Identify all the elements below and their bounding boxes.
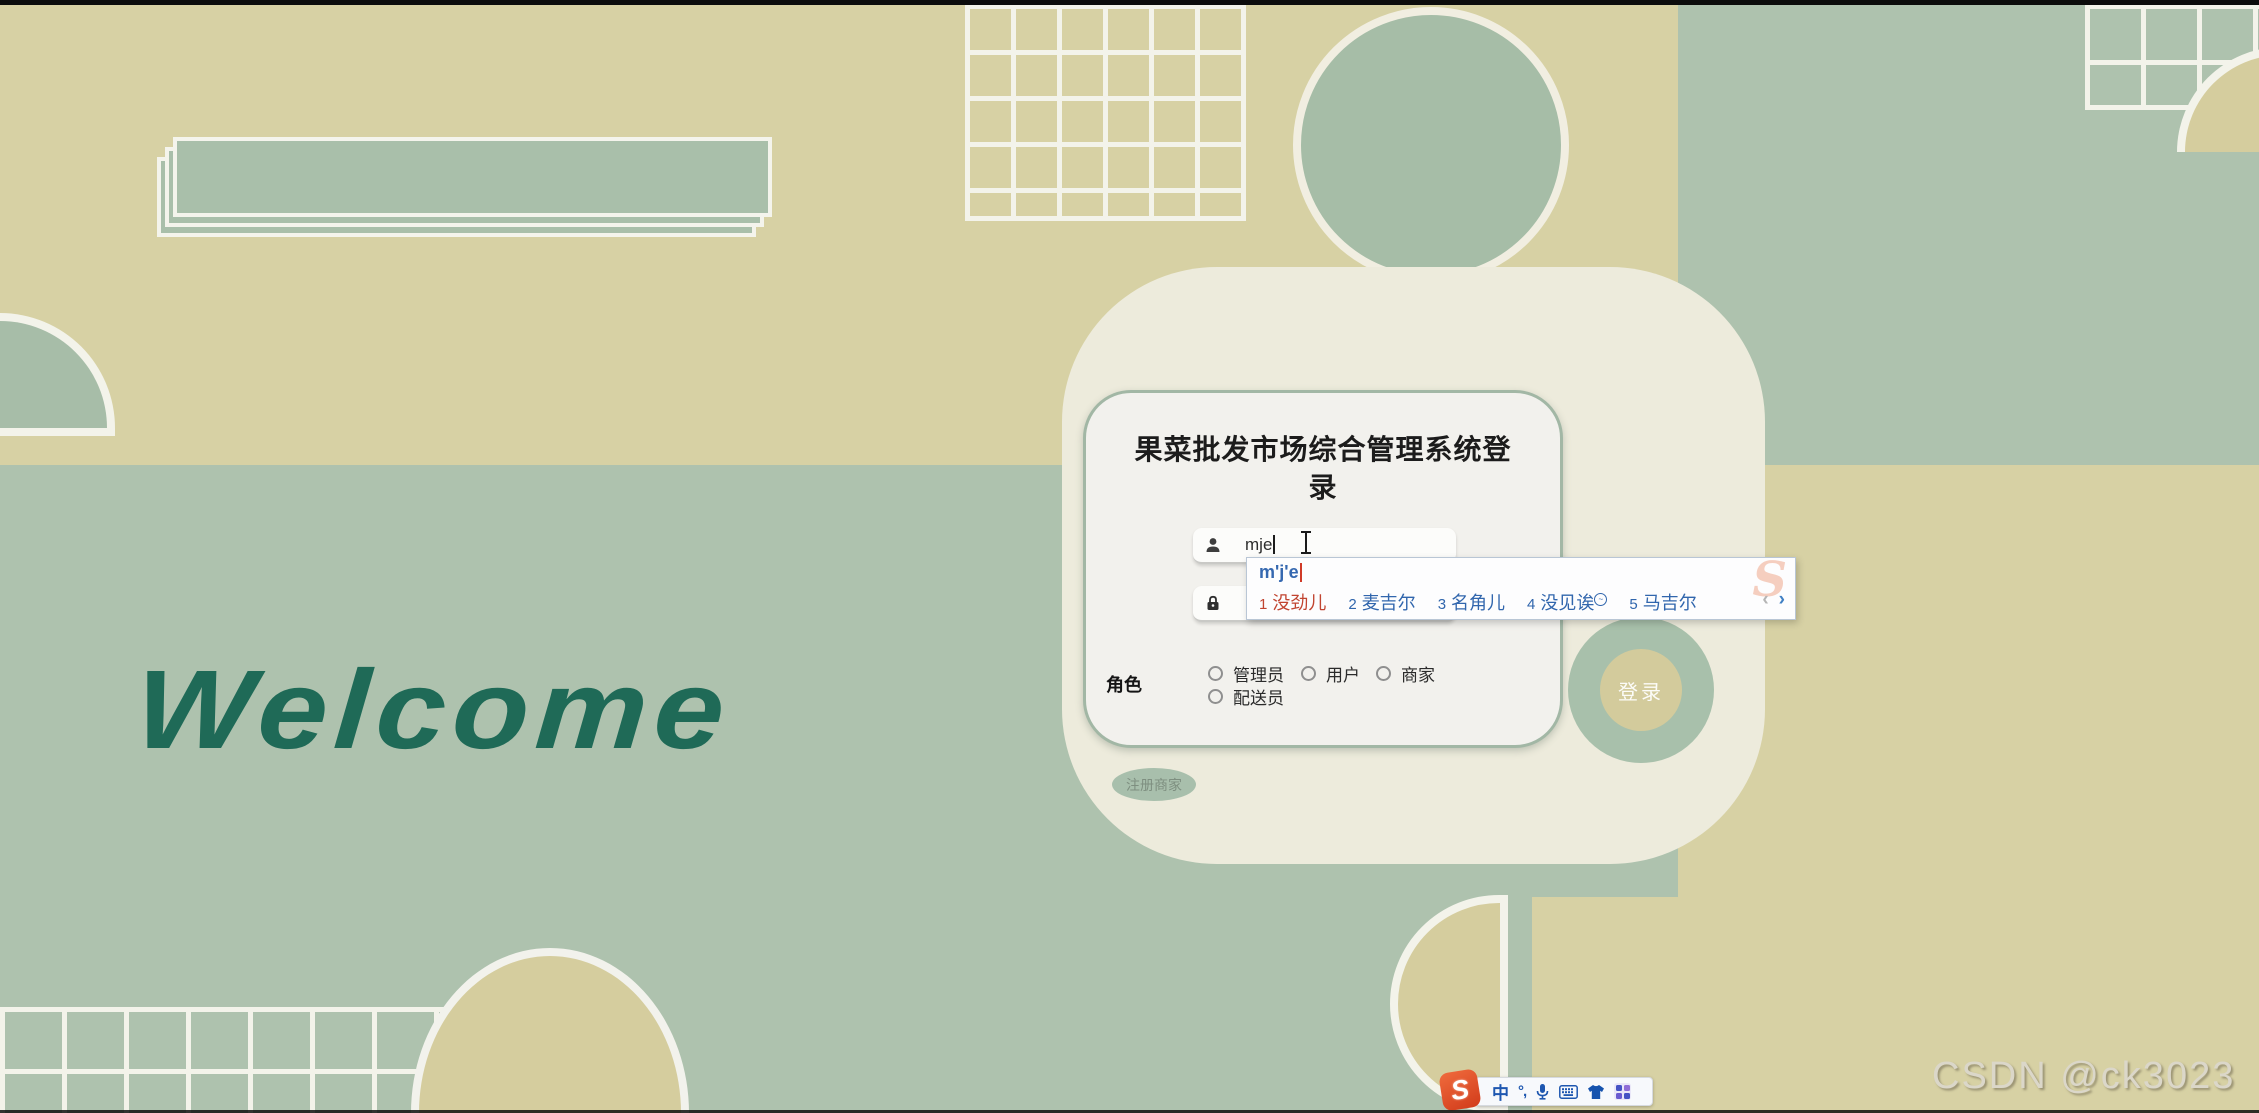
decor-grid-top-middle [965,4,1246,221]
ime-pinyin-preedit: m'j'e [1259,562,1302,583]
ime-caret [1300,563,1302,582]
radio-circle-icon[interactable] [1208,689,1223,704]
login-button[interactable]: 登录 [1568,617,1714,763]
ime-page-prev-icon[interactable]: ‹ [1762,589,1768,611]
welcome-text: Welcome [131,645,1148,774]
login-page: Welcome 果菜批发市场综合管理系统登录 mje 角色 管理员 用户 [0,0,2259,1113]
csdn-watermark: CSDN @ck3023 [1932,1055,2235,1098]
user-icon [1204,536,1222,554]
radio-circle-icon[interactable] [1376,666,1391,681]
punctuation-mode-icon[interactable]: °, [1518,1083,1526,1100]
ime-candidate-1[interactable]: 1没劲儿 [1259,589,1326,615]
login-title: 果菜批发市场综合管理系统登录 [1123,431,1523,507]
ime-toolbar: 中 °, [1475,1077,1653,1106]
screen-top-bar [0,0,2259,5]
ime-candidate-list: 1没劲儿 2麦吉尔 3名角儿 4没见诶~ 5马吉尔 [1259,589,1697,615]
radio-circle-icon[interactable] [1208,666,1223,681]
ime-candidate-5[interactable]: 5马吉尔 [1629,589,1696,615]
ime-candidate-4[interactable]: 4没见诶~ [1527,589,1607,615]
chinese-mode-icon[interactable]: 中 [1492,1079,1509,1104]
register-merchant-button[interactable]: 注册商家 [1112,768,1196,801]
skin-tshirt-icon[interactable] [1587,1084,1605,1100]
decor-circle-bottom-left [411,948,689,1113]
microphone-icon[interactable] [1535,1083,1550,1100]
stacked-rectangle-front [173,137,772,217]
username-value: mje [1245,535,1275,555]
toolbox-grid-icon[interactable] [1614,1083,1631,1100]
bg-block-khaki-right [1678,465,2259,897]
ime-page-next-icon[interactable]: › [1779,589,1785,611]
cloud-result-icon: ~ [1594,593,1607,606]
ime-pager: ‹ › [1762,589,1785,611]
ime-candidate-3[interactable]: 3名角儿 [1438,589,1505,615]
text-caret [1273,535,1275,554]
role-radio-admin[interactable]: 管理员 [1208,661,1284,686]
mouse-ibeam-cursor [1300,530,1312,555]
avatar-head-circle [1293,7,1569,283]
lock-icon [1204,594,1222,612]
keyboard-icon[interactable] [1559,1085,1578,1099]
ime-candidate-2[interactable]: 2麦吉尔 [1348,589,1415,615]
role-radio-merchant[interactable]: 商家 [1376,661,1435,686]
role-radio-courier[interactable]: 配送员 [1208,684,1284,709]
role-label: 角色 [1106,671,1142,697]
sogou-logo[interactable]: S [1438,1068,1481,1111]
login-button-label[interactable]: 登录 [1600,649,1682,731]
radio-circle-icon[interactable] [1301,666,1316,681]
ime-candidate-popup: S m'j'e 1没劲儿 2麦吉尔 3名角儿 4没见诶~ 5马吉尔 ‹ › [1246,557,1796,620]
role-radio-user[interactable]: 用户 [1301,661,1360,686]
